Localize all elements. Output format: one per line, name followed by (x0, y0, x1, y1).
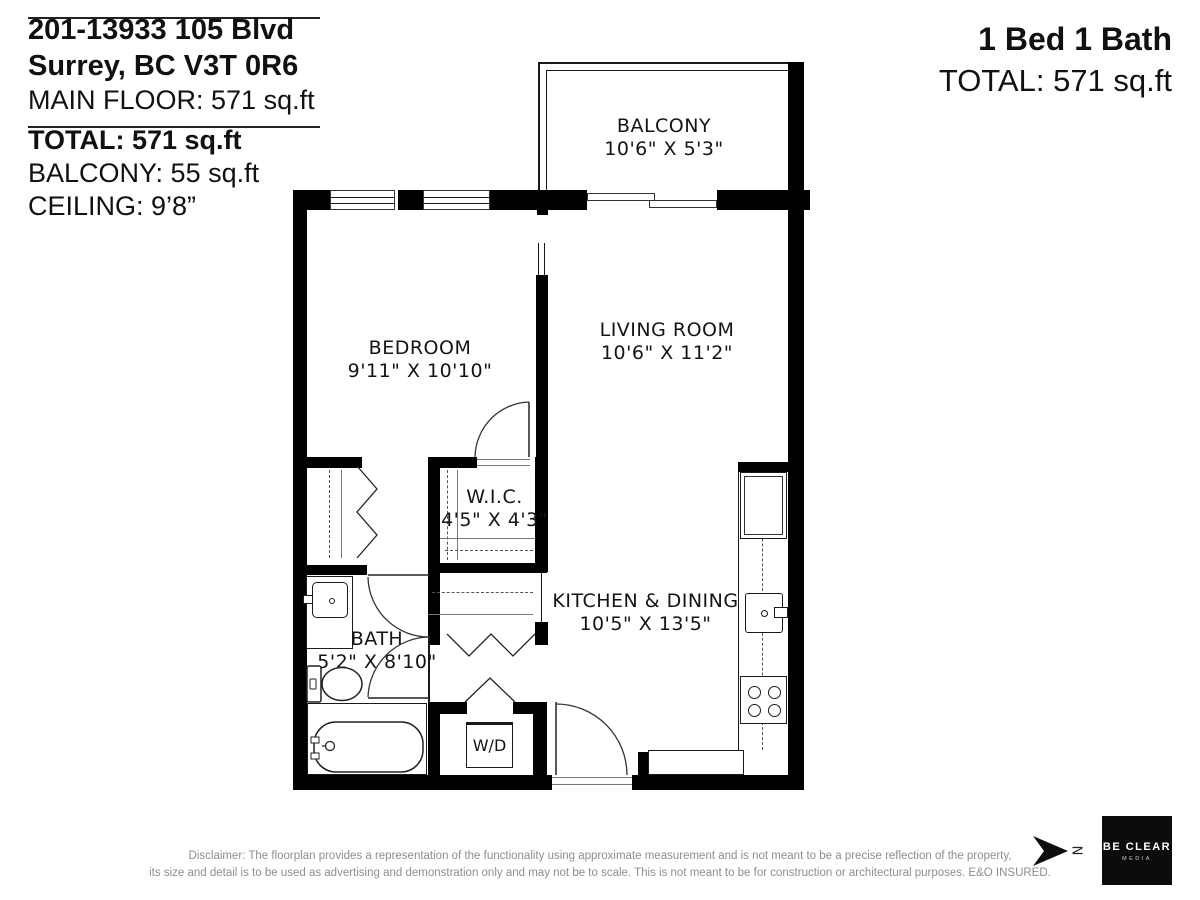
hall-closet-shelf-dashed (432, 592, 533, 593)
wall-top-mid (398, 190, 423, 210)
wall-wd-east (533, 702, 547, 775)
bedroom-label: BEDROOM 9'11" X 10'10" (320, 338, 520, 382)
entry-door-sill (552, 784, 632, 785)
header-left: 201-13933 105 Blvd Surrey, BC V3T 0R6 MA… (28, 12, 315, 223)
room-name: BEDROOM (320, 338, 520, 359)
laundry-label: W/D (466, 722, 513, 768)
wall-bottom-right (632, 775, 804, 790)
balcony-label: BALCONY 10'6" X 5'3" (564, 116, 764, 160)
window-pane-line (331, 197, 394, 198)
header-mid-rule (28, 126, 320, 128)
kitchen-dining-label: KITCHEN & DINING 10'5" X 13'5" (533, 591, 758, 635)
room-name: BALCONY (564, 116, 764, 137)
kitchen-sink-drain (761, 610, 768, 617)
wic-door-sill (477, 465, 530, 466)
kitchen-counter-return (648, 750, 744, 775)
disclaimer-line2: its size and detail is to be used as adv… (95, 865, 1105, 882)
bedliving-glass-line (544, 243, 545, 275)
wic-shelf-edge (440, 538, 535, 539)
entry-door-arc (556, 704, 627, 775)
sliding-door-panel-1 (587, 193, 655, 201)
room-dims: 9'11" X 10'10" (320, 361, 520, 382)
stove (740, 676, 787, 724)
bedroom-window-2 (423, 190, 490, 210)
stove-burner (768, 704, 781, 717)
bath-faucet (303, 595, 313, 604)
wall-bedliving-stub (537, 205, 548, 215)
stove-burner (768, 686, 781, 699)
wic-shelf-dashed (445, 550, 533, 551)
window-pane-line (424, 197, 489, 198)
bedroom-closet-bifold (357, 466, 377, 558)
wall-bottom-left (293, 775, 552, 790)
disclaimer-line1: Disclaimer: The floorplan provides a rep… (95, 848, 1105, 865)
entry-door-sill (552, 777, 632, 778)
bedroom-closet-edge (341, 470, 342, 558)
header-right: 1 Bed 1 Bath TOTAL: 571 sq.ft (939, 20, 1172, 100)
sliding-door-panel-2 (649, 200, 717, 208)
wall-left (293, 190, 307, 790)
beds-baths: 1 Bed 1 Bath (939, 20, 1172, 58)
balcony-area: BALCONY: 55 sq.ft (28, 157, 315, 190)
hall-closet-bifold (447, 634, 535, 656)
balcony-wall-left (538, 62, 540, 190)
wic-door-sill (477, 459, 530, 460)
room-name: BATH (297, 629, 457, 650)
north-label: N (1068, 846, 1083, 856)
bedroom-closet-rod (329, 470, 330, 558)
beclear-logo: BE CLEAR MEDIA (1102, 816, 1172, 885)
ceiling-height: CEILING: 9’8” (28, 190, 315, 223)
wall-wd-west (428, 702, 440, 775)
wic-label: W.I.C. 4'5" X 4'3" (417, 487, 572, 531)
disclaimer: Disclaimer: The floorplan provides a rep… (95, 848, 1105, 881)
balcony-inner-line-top (546, 70, 804, 71)
bedroom-window-1 (330, 190, 395, 210)
room-name: LIVING ROOM (567, 320, 767, 341)
stove-burner (748, 704, 761, 717)
logo-name: BE CLEAR (1102, 841, 1172, 853)
wall-bedroom-south-left (307, 457, 362, 468)
wall-bath-north (307, 565, 367, 575)
wall-right (788, 62, 804, 790)
laundry-bifold (465, 678, 515, 702)
wall-wic-west (428, 457, 440, 645)
wic-door-arc (475, 402, 529, 457)
wall-wic-closet-divider (428, 563, 547, 573)
bath-sink-drain (329, 598, 335, 604)
hall-closet-shelf-edge (428, 614, 533, 615)
window-pane-line (424, 203, 489, 204)
address-line1: 201-13933 105 Blvd (28, 12, 315, 48)
main-floor-area: MAIN FLOOR: 571 sq.ft (28, 84, 315, 117)
stove-burner (748, 686, 761, 699)
logo-subtitle: MEDIA (1102, 856, 1172, 862)
fridge-inner-line (744, 476, 783, 535)
room-dims: 10'5" X 13'5" (533, 614, 758, 635)
room-dims: 4'5" X 4'3" (417, 510, 572, 531)
kitchen-faucet (774, 607, 788, 618)
wall-bedroom-living (536, 275, 548, 457)
address-line2: Surrey, BC V3T 0R6 (28, 48, 315, 84)
room-name: KITCHEN & DINING (533, 591, 758, 612)
window-pane-line (331, 203, 394, 204)
balcony-wall-top (538, 62, 804, 64)
room-dims: 10'6" X 5'3" (564, 139, 764, 160)
room-dims: 5'2" X 8'10" (297, 652, 457, 673)
wall-kitchen-stub (738, 462, 788, 472)
toilet-flush (310, 679, 316, 689)
floorplan-sheet: 201-13933 105 Blvd Surrey, BC V3T 0R6 MA… (0, 0, 1200, 900)
room-dims: 10'6" X 11'2" (567, 343, 767, 364)
living-room-label: LIVING ROOM 10'6" X 11'2" (567, 320, 767, 364)
bedliving-glass-line (538, 243, 539, 275)
room-name: W.I.C. (417, 487, 572, 508)
tub-surround (307, 703, 427, 775)
bath-label: BATH 5'2" X 8'10" (297, 629, 457, 673)
total-area: TOTAL: 571 sq.ft (28, 124, 315, 157)
balcony-inner-line-left (546, 70, 547, 190)
total-area-right: TOTAL: 571 sq.ft (939, 62, 1172, 100)
